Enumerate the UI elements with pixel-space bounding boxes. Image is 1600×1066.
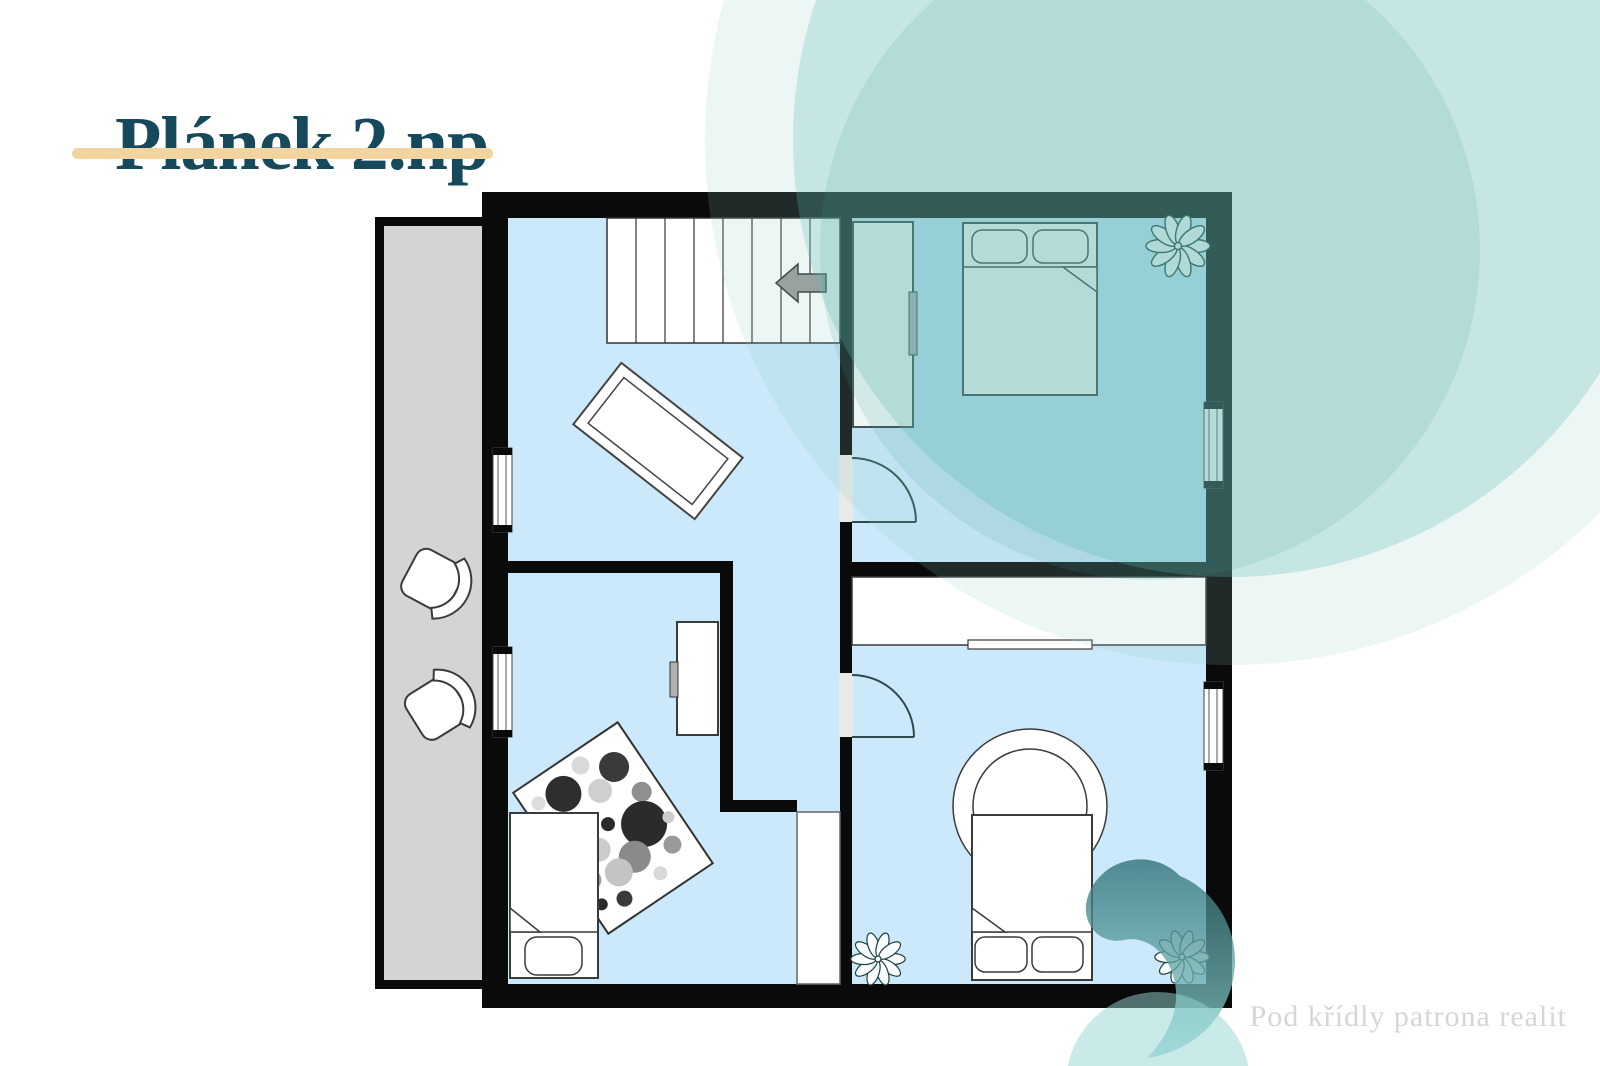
title-underline	[72, 148, 493, 159]
cabinet	[670, 622, 718, 735]
sliding-closet	[852, 577, 1206, 649]
watermark-text: Pod křídly patrona realit	[1250, 1000, 1567, 1034]
page-title: Plánek 2.np	[115, 101, 488, 188]
pillow	[525, 937, 582, 975]
pillow	[975, 937, 1027, 972]
double-bed	[963, 223, 1097, 395]
pillow	[972, 230, 1027, 263]
pillow	[1033, 230, 1088, 263]
window-right-1	[1204, 402, 1223, 488]
staircase	[607, 218, 840, 343]
single-bed	[510, 813, 598, 978]
double-bed	[972, 815, 1092, 980]
window-left-1	[493, 448, 512, 532]
window-left-2	[493, 647, 512, 737]
wardrobe	[853, 222, 917, 427]
window-right-2	[1204, 682, 1223, 770]
shaft-void	[797, 812, 840, 984]
slide-canvas: { "page": { "title": "Plánek 2.np", "wat…	[0, 0, 1600, 1066]
pillow	[1032, 937, 1083, 972]
